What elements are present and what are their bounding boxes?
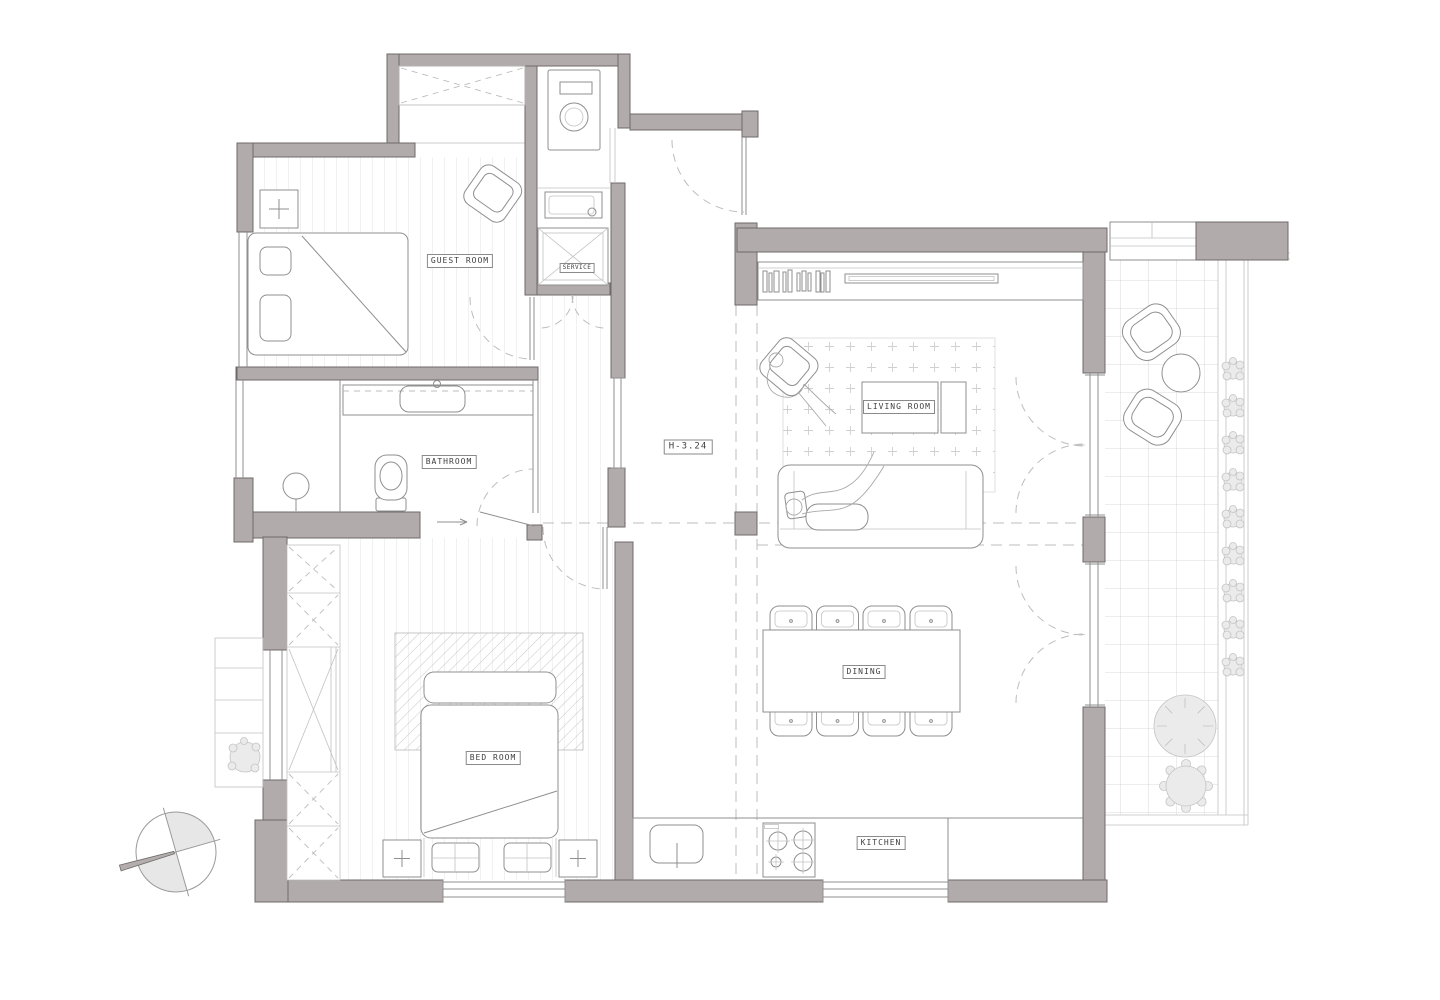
bed-bench-cushion	[504, 843, 551, 872]
guest-door-leaf	[530, 297, 534, 360]
planter-flowers	[1222, 358, 1244, 677]
sofa-cushion	[806, 504, 868, 530]
shower-window	[236, 380, 243, 478]
bed-window	[443, 880, 565, 902]
sofa	[778, 465, 983, 548]
bathroom-door-leaf	[480, 512, 534, 526]
kitchen-window	[823, 880, 948, 902]
guest-closet-floor	[399, 105, 525, 143]
potted-tree	[1154, 695, 1216, 757]
guest-bed	[248, 233, 408, 355]
bed	[421, 705, 558, 838]
bed-headboard	[424, 672, 556, 703]
entry-door-swing	[672, 140, 744, 212]
guest-room-window	[239, 232, 247, 367]
bed-bench-cushion	[432, 843, 479, 872]
label-kitchen: KITCHEN	[857, 836, 906, 850]
vanity-counter	[343, 385, 533, 415]
bathroom	[283, 380, 538, 526]
label-dining: DINING	[843, 665, 886, 679]
entry-door	[672, 137, 746, 215]
floor-plan-drawing	[0, 0, 1440, 1000]
label-bathroom: BATHROOM	[422, 455, 477, 469]
potted-plant	[1160, 760, 1213, 813]
ac-platform	[1110, 222, 1196, 260]
label-guest-room: GUEST ROOM	[427, 254, 493, 268]
entry-door-leaf	[742, 137, 746, 215]
label-service: SERVICE	[560, 263, 595, 273]
shower-drain	[283, 473, 309, 499]
bathroom-door-swing	[477, 469, 534, 526]
label-living-room: LIVING ROOM	[863, 400, 935, 414]
label-ceiling-height: H-3.24	[664, 440, 713, 455]
side-table	[941, 382, 966, 433]
bedroom-window	[270, 650, 282, 780]
planter-plant	[228, 738, 260, 773]
hall-window	[611, 378, 625, 468]
bedroom-closet	[287, 545, 340, 880]
entry-arrow	[437, 519, 467, 525]
guest-closet	[399, 66, 525, 105]
balcony-table	[1162, 354, 1200, 392]
north-arrow-icon	[108, 795, 233, 912]
hallway-floor	[537, 295, 611, 538]
floor-plan-sheet: GUEST ROOM SERVICE BATHROOM BED ROOM LIV…	[0, 0, 1440, 1000]
label-bed-room: BED ROOM	[466, 751, 521, 765]
stove	[763, 823, 815, 877]
